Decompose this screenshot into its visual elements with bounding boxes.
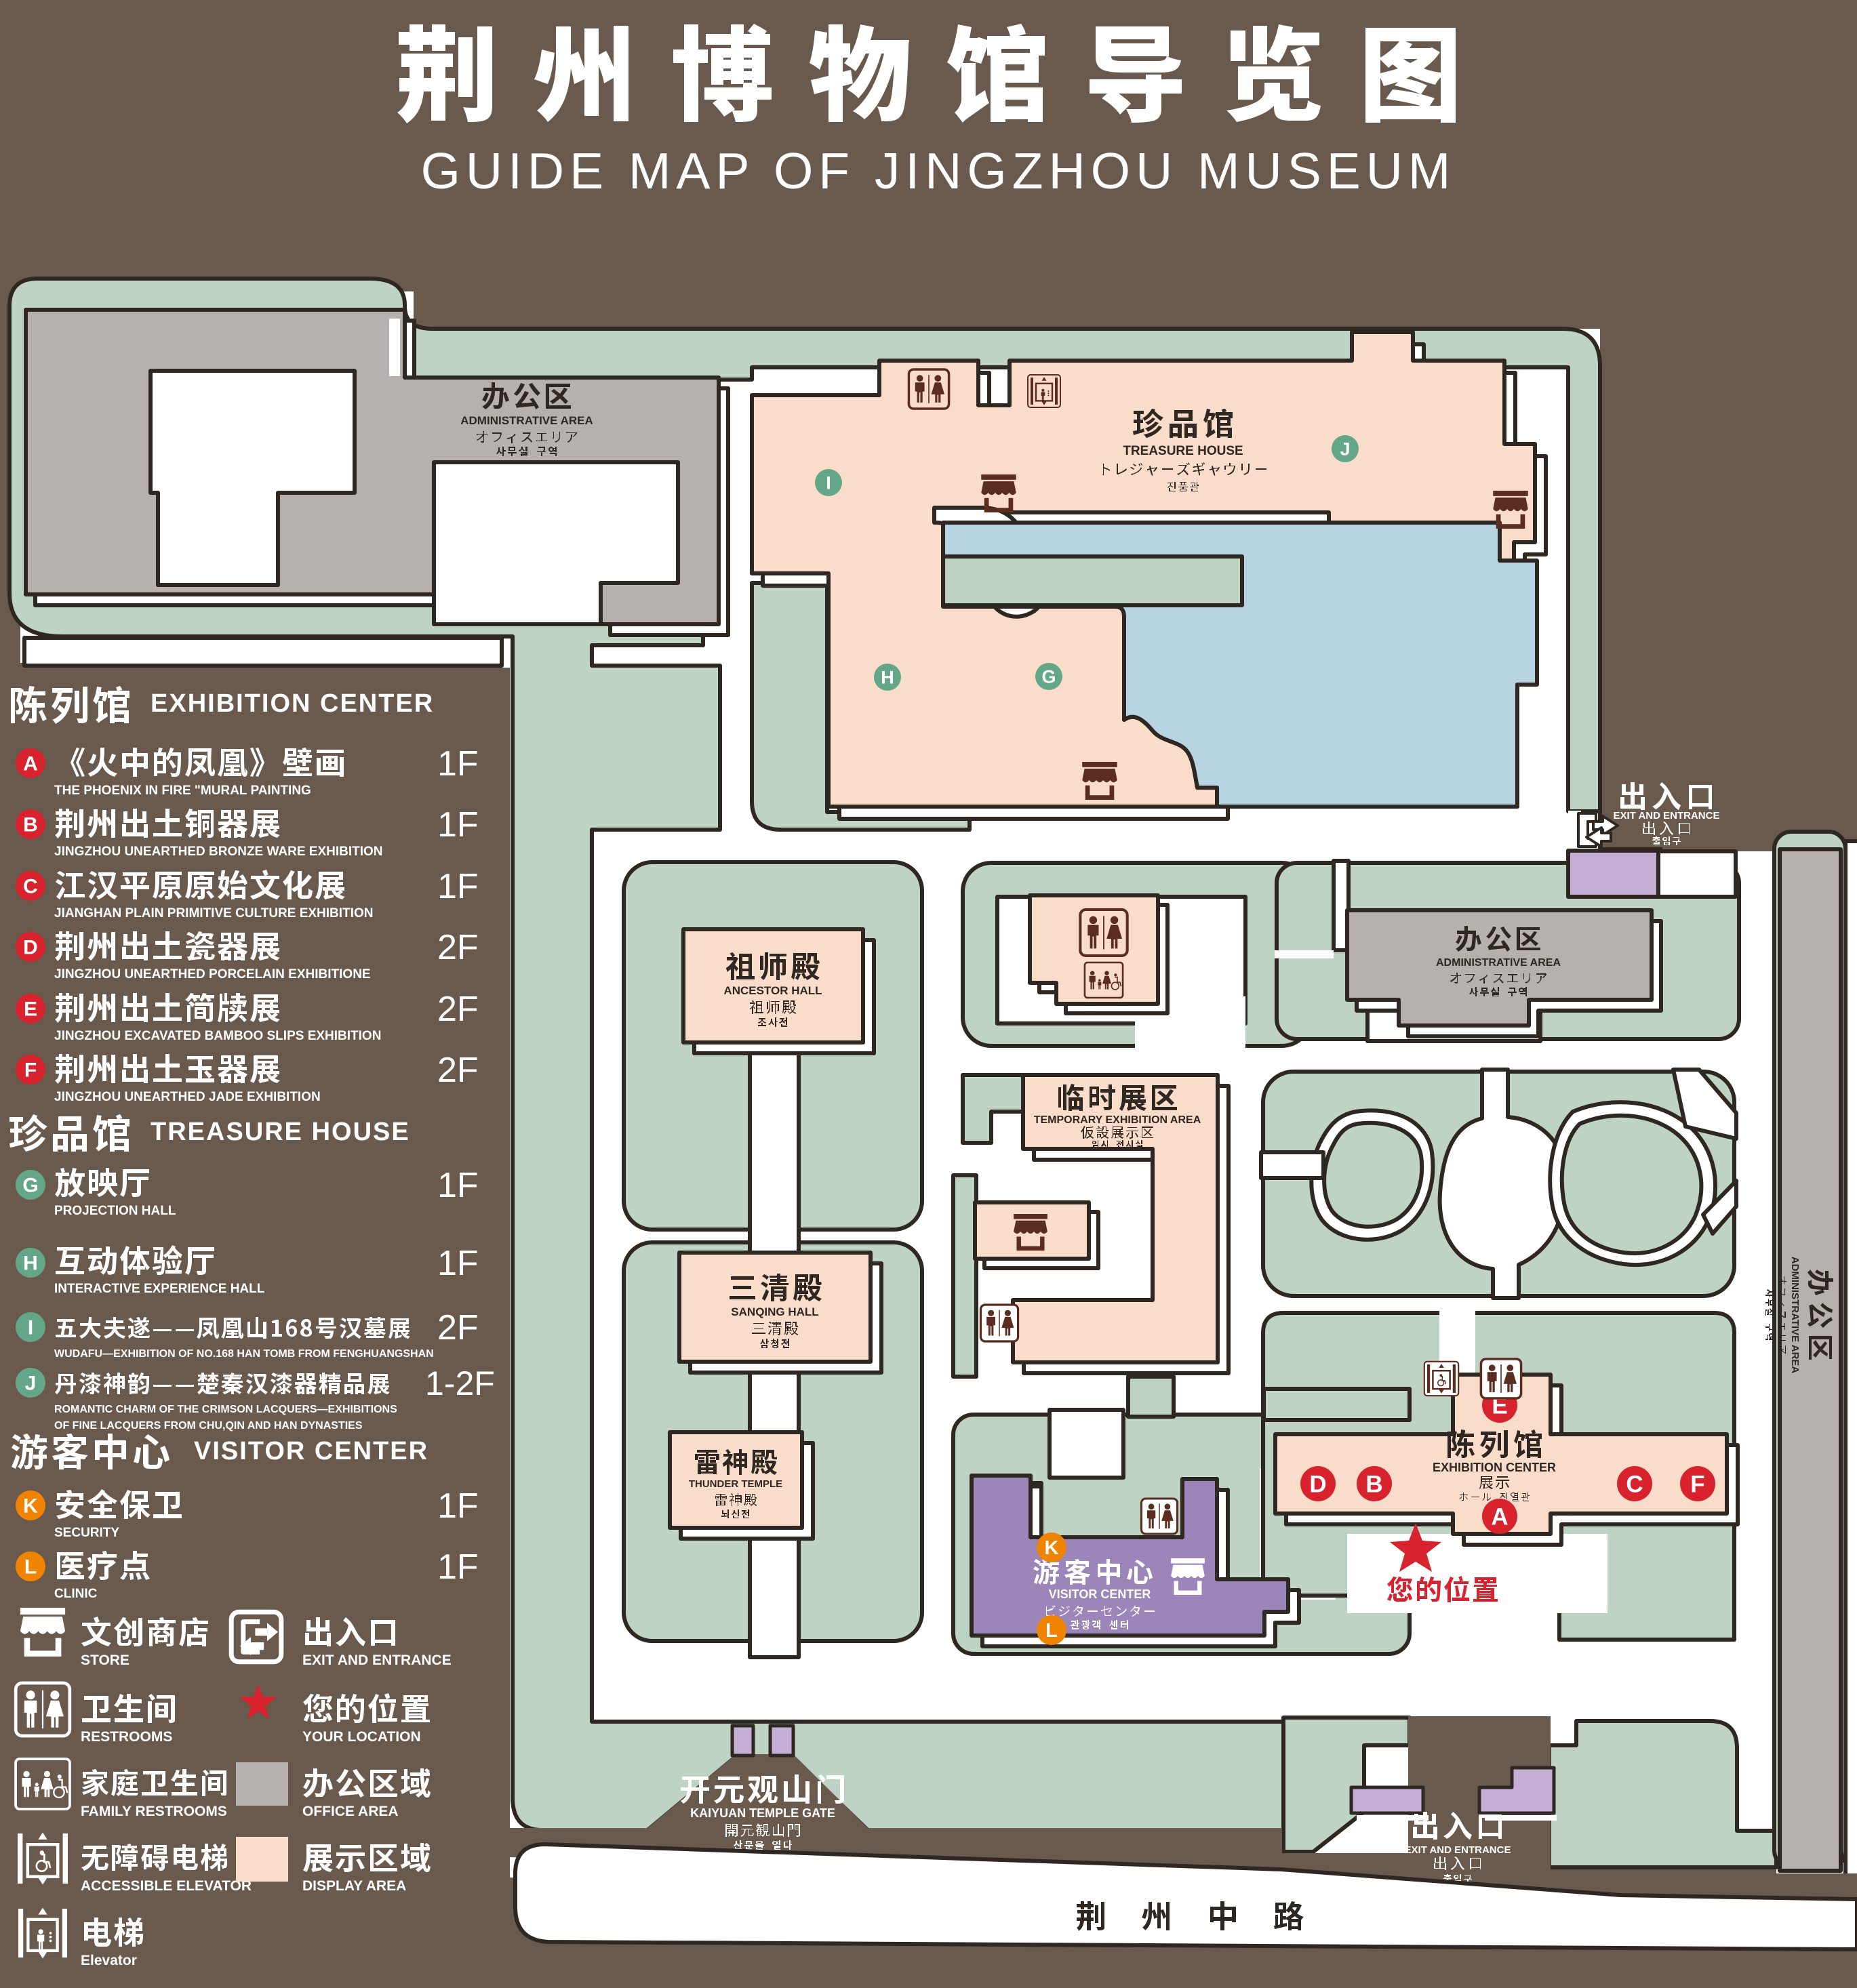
svg-text:EXIT AND ENTRANCE: EXIT AND ENTRANCE [1405, 1844, 1511, 1856]
svg-text:TREASURE HOUSE: TREASURE HOUSE [151, 1118, 410, 1146]
svg-text:ACCESSIBLE ELEVATOR: ACCESSIBLE ELEVATOR [81, 1878, 252, 1894]
svg-text:1F: 1F [437, 867, 479, 906]
svg-text:RESTROOMS: RESTROOMS [81, 1729, 172, 1745]
svg-text:1F: 1F [437, 744, 479, 784]
svg-text:K: K [1045, 1537, 1059, 1559]
svg-text:ADMINISTRATIVE AREA: ADMINISTRATIVE AREA [460, 414, 593, 427]
svg-text:OF FINE LACQUERS FROM CHU,QIN: OF FINE LACQUERS FROM CHU,QIN AND HAN DY… [54, 1420, 363, 1432]
svg-text:JINGZHOU UNEARTHED PORCELAIN E: JINGZHOU UNEARTHED PORCELAIN EXHIBITIONE [54, 967, 371, 981]
svg-text:F: F [24, 1059, 37, 1082]
svg-text:THE PHOENIX IN FIRE "MURAL PAI: THE PHOENIX IN FIRE "MURAL PAINTING [54, 784, 311, 798]
svg-text:L: L [1045, 1620, 1058, 1642]
svg-text:I: I [28, 1317, 33, 1339]
svg-text:GUIDE MAP OF JINGZHOU MUSEUM: GUIDE MAP OF JINGZHOU MUSEUM [421, 142, 1456, 199]
svg-text:1-2F: 1-2F [425, 1364, 495, 1402]
svg-text:STORE: STORE [81, 1652, 129, 1668]
svg-text:KAIYUAN TEMPLE GATE: KAIYUAN TEMPLE GATE [690, 1806, 835, 1820]
svg-text:2F: 2F [437, 1051, 479, 1090]
svg-text:OFFICE AREA: OFFICE AREA [302, 1804, 399, 1819]
svg-text:J: J [25, 1373, 37, 1395]
svg-text:VISITOR CENTER: VISITOR CENTER [194, 1437, 428, 1465]
svg-text:YOUR LOCATION: YOUR LOCATION [302, 1729, 421, 1745]
svg-text:EXIT AND ENTRANCE: EXIT AND ENTRANCE [302, 1652, 452, 1668]
svg-text:1F: 1F [437, 1166, 479, 1205]
svg-text:C: C [1626, 1471, 1643, 1497]
svg-text:JIANGHAN PLAIN PRIMITIVE CULTU: JIANGHAN PLAIN PRIMITIVE CULTURE EXHIBIT… [54, 906, 373, 920]
svg-text:E: E [24, 998, 37, 1021]
svg-text:JINGZHOU UNEARTHED BRONZE WARE: JINGZHOU UNEARTHED BRONZE WARE EXHIBITIO… [54, 845, 383, 859]
svg-text:C: C [23, 876, 38, 898]
svg-text:B: B [1365, 1471, 1382, 1497]
svg-text:D: D [1309, 1471, 1326, 1497]
svg-text:CLINIC: CLINIC [54, 1587, 98, 1601]
svg-text:THUNDER TEMPLE: THUNDER TEMPLE [689, 1478, 782, 1490]
svg-text:FAMILY RESTROOMS: FAMILY RESTROOMS [81, 1804, 227, 1819]
svg-text:A: A [1491, 1503, 1508, 1530]
svg-text:L: L [24, 1556, 37, 1579]
svg-text:INTERACTIVE EXPERIENCE HALL: INTERACTIVE EXPERIENCE HALL [54, 1282, 265, 1296]
svg-text:I: I [826, 472, 831, 493]
svg-text:A: A [23, 753, 38, 775]
svg-text:F: F [1690, 1471, 1704, 1497]
svg-text:1F: 1F [437, 805, 479, 845]
svg-text:PROJECTION HALL: PROJECTION HALL [54, 1204, 176, 1218]
svg-text:JINGZHOU EXCAVATED BAMBOO SLIP: JINGZHOU EXCAVATED BAMBOO SLIPS EXHIBITI… [54, 1029, 381, 1043]
svg-text:VISITOR CENTER: VISITOR CENTER [1049, 1587, 1151, 1601]
svg-text:H: H [23, 1253, 38, 1275]
svg-text:ADMINISTRATIVE AREA: ADMINISTRATIVE AREA [1789, 1257, 1801, 1374]
svg-text:1F: 1F [437, 1547, 479, 1587]
svg-text:D: D [23, 937, 38, 959]
svg-text:EXIT AND ENTRANCE: EXIT AND ENTRANCE [1614, 810, 1720, 821]
svg-text:JINGZHOU UNEARTHED JADE EXHIBI: JINGZHOU UNEARTHED JADE EXHIBITION [54, 1090, 321, 1104]
svg-text:1F: 1F [437, 1244, 479, 1283]
svg-text:ADMINISTRATIVE AREA: ADMINISTRATIVE AREA [1436, 957, 1561, 969]
svg-text:G: G [22, 1175, 38, 1197]
svg-text:H: H [881, 667, 894, 687]
svg-text:TREASURE HOUSE: TREASURE HOUSE [1123, 444, 1243, 458]
svg-text:EXHIBITION CENTER: EXHIBITION CENTER [1433, 1461, 1556, 1474]
svg-text:WUDAFU—EXHIBITION OF NO.168 HA: WUDAFU—EXHIBITION OF NO.168 HAN TOMB FRO… [54, 1348, 434, 1360]
svg-text:G: G [1041, 666, 1056, 687]
svg-text:TEMPORARY EXHIBITION AREA: TEMPORARY EXHIBITION AREA [1034, 1114, 1201, 1126]
svg-text:SECURITY: SECURITY [54, 1526, 119, 1540]
svg-text:ANCESTOR HALL: ANCESTOR HALL [723, 984, 822, 997]
svg-text:2F: 2F [437, 1308, 479, 1347]
svg-text:ROMANTIC CHARM OF THE CRIMSON: ROMANTIC CHARM OF THE CRIMSON LACQUERS—E… [54, 1404, 397, 1415]
svg-text:SANQING HALL: SANQING HALL [731, 1305, 818, 1318]
svg-text:B: B [23, 814, 38, 836]
svg-text:J: J [1340, 439, 1350, 459]
svg-text:EXHIBITION CENTER: EXHIBITION CENTER [151, 689, 434, 718]
svg-text:DISPLAY AREA: DISPLAY AREA [302, 1878, 406, 1894]
svg-text:2F: 2F [437, 928, 479, 967]
svg-text:Elevator: Elevator [81, 1953, 137, 1968]
svg-text:2F: 2F [437, 990, 479, 1029]
svg-text:K: K [23, 1495, 38, 1518]
svg-text:1F: 1F [437, 1486, 479, 1526]
